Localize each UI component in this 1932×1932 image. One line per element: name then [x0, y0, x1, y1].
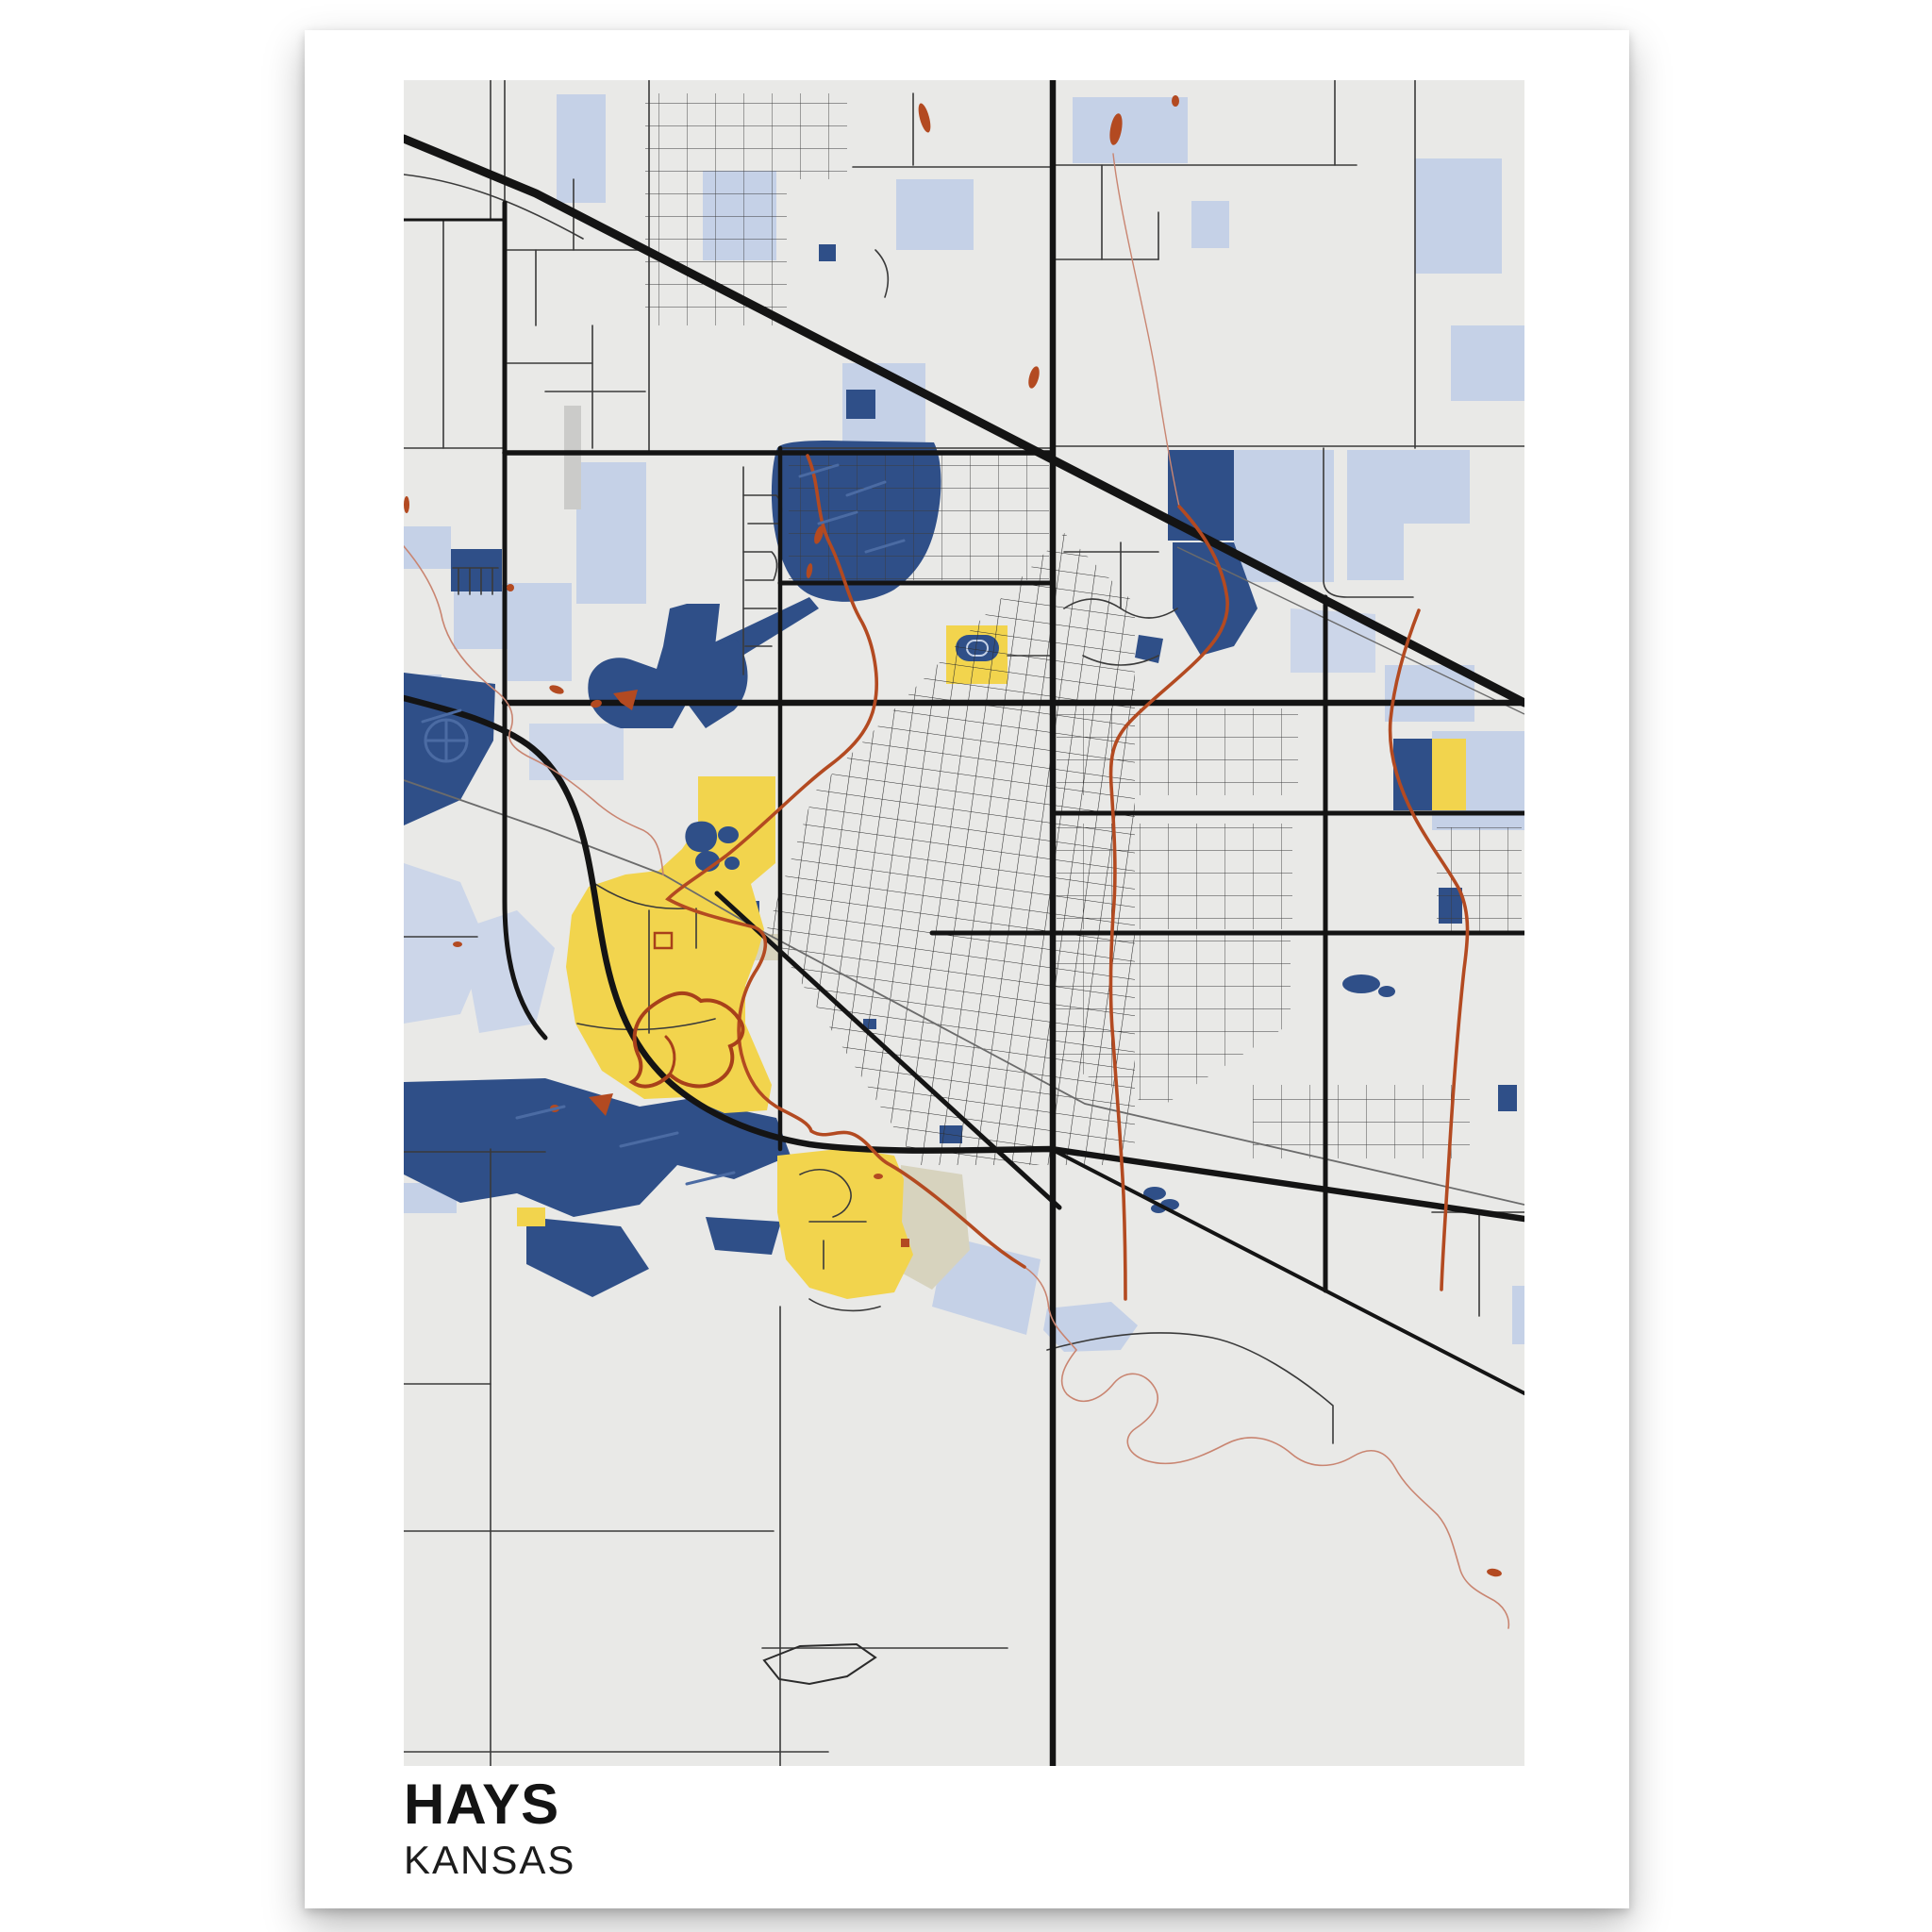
poster-title: HAYS — [404, 1776, 575, 1833]
title-block: HAYS KANSAS — [404, 1776, 575, 1880]
anchor-pond — [588, 604, 747, 728]
hays-city-map — [404, 80, 1524, 1766]
west-golf-area — [404, 673, 495, 825]
poster-subtitle: KANSAS — [404, 1840, 575, 1880]
south-golf-area — [777, 1148, 913, 1299]
map-poster: HAYS KANSAS — [305, 30, 1629, 1908]
map-frame — [404, 80, 1524, 1766]
page: HAYS KANSAS — [0, 0, 1932, 1932]
